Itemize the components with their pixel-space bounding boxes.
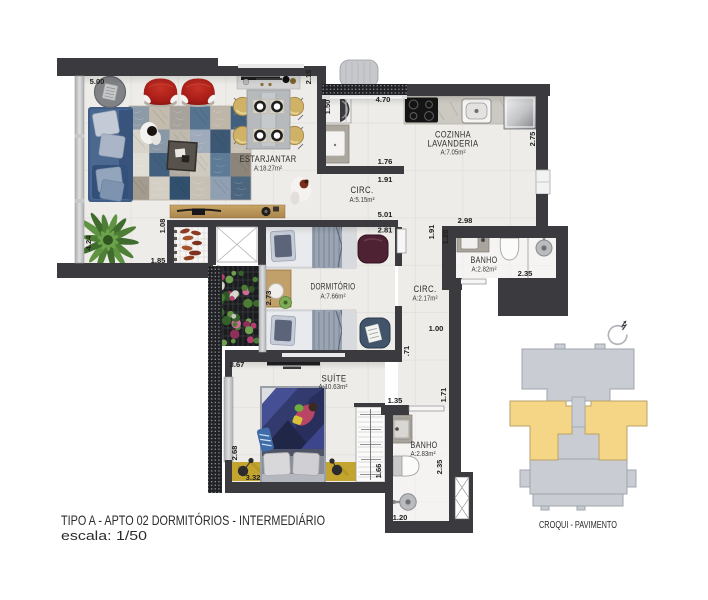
svg-text:1.50: 1.50 bbox=[323, 100, 332, 115]
svg-text:1.20: 1.20 bbox=[393, 513, 408, 522]
svg-text:A:7.66m²: A:7.66m² bbox=[321, 294, 347, 301]
svg-text:BANHO: BANHO bbox=[471, 255, 498, 265]
svg-text:A:2.82m²: A:2.82m² bbox=[472, 267, 498, 274]
svg-text:1.76: 1.76 bbox=[378, 157, 393, 166]
svg-text:5.01: 5.01 bbox=[378, 210, 394, 219]
svg-text:1.85: 1.85 bbox=[151, 256, 167, 265]
svg-text:2.75: 2.75 bbox=[528, 131, 537, 147]
svg-text:2.35: 2.35 bbox=[518, 269, 534, 278]
svg-text:2.73: 2.73 bbox=[264, 291, 273, 306]
svg-text:A:7.05m²: A:7.05m² bbox=[441, 150, 467, 157]
svg-text:A:2.83m²: A:2.83m² bbox=[411, 451, 437, 458]
svg-text:1.00: 1.00 bbox=[429, 324, 444, 333]
svg-text:ESTARJANTAR: ESTARJANTAR bbox=[240, 154, 297, 164]
svg-text:DORMITÓRIO: DORMITÓRIO bbox=[311, 282, 356, 292]
svg-text:A:10.63m²: A:10.63m² bbox=[319, 384, 349, 391]
svg-text:1.35: 1.35 bbox=[388, 396, 404, 405]
svg-text:.71: .71 bbox=[402, 345, 411, 356]
svg-text:LAVANDERIA: LAVANDERIA bbox=[428, 139, 479, 149]
svg-text:1.91: 1.91 bbox=[378, 175, 394, 184]
svg-text:4.70: 4.70 bbox=[376, 95, 391, 104]
svg-text:2.98: 2.98 bbox=[458, 216, 473, 225]
svg-text:CIRC.: CIRC. bbox=[414, 284, 437, 294]
svg-text:SUÍTE: SUÍTE bbox=[322, 374, 347, 384]
svg-text:3.32: 3.32 bbox=[246, 473, 261, 482]
svg-text:CIRC.: CIRC. bbox=[351, 185, 374, 195]
svg-text:BANHO: BANHO bbox=[411, 440, 438, 450]
svg-text:1.71: 1.71 bbox=[439, 387, 448, 403]
svg-text:2.81: 2.81 bbox=[378, 226, 394, 235]
svg-text:A:2.17m²: A:2.17m² bbox=[413, 296, 439, 303]
svg-text:A:18.27m²: A:18.27m² bbox=[254, 166, 283, 173]
svg-text:1.66: 1.66 bbox=[374, 464, 383, 479]
svg-text:1.91: 1.91 bbox=[427, 224, 436, 240]
svg-text:TIPO A - APTO 02 DORMITÓRIOS: TIPO A - APTO 02 DORMITÓRIOS - INTERMEDI… bbox=[61, 512, 325, 528]
svg-text:2.68: 2.68 bbox=[230, 446, 239, 461]
svg-text:1.20: 1.20 bbox=[441, 230, 450, 245]
svg-text:2.15: 2.15 bbox=[304, 69, 313, 85]
svg-text:5.00: 5.00 bbox=[90, 77, 105, 86]
svg-text:2.35: 2.35 bbox=[435, 459, 444, 475]
svg-text:A:5.15m²: A:5.15m² bbox=[350, 197, 376, 204]
svg-text:escala: 1/50: escala: 1/50 bbox=[61, 528, 147, 543]
svg-text:1.08: 1.08 bbox=[158, 219, 167, 234]
svg-text:4.24: 4.24 bbox=[84, 235, 93, 251]
svg-text:3.67: 3.67 bbox=[230, 360, 245, 369]
svg-text:CROQUI - PAVIMENTO: CROQUI - PAVIMENTO bbox=[539, 520, 617, 531]
